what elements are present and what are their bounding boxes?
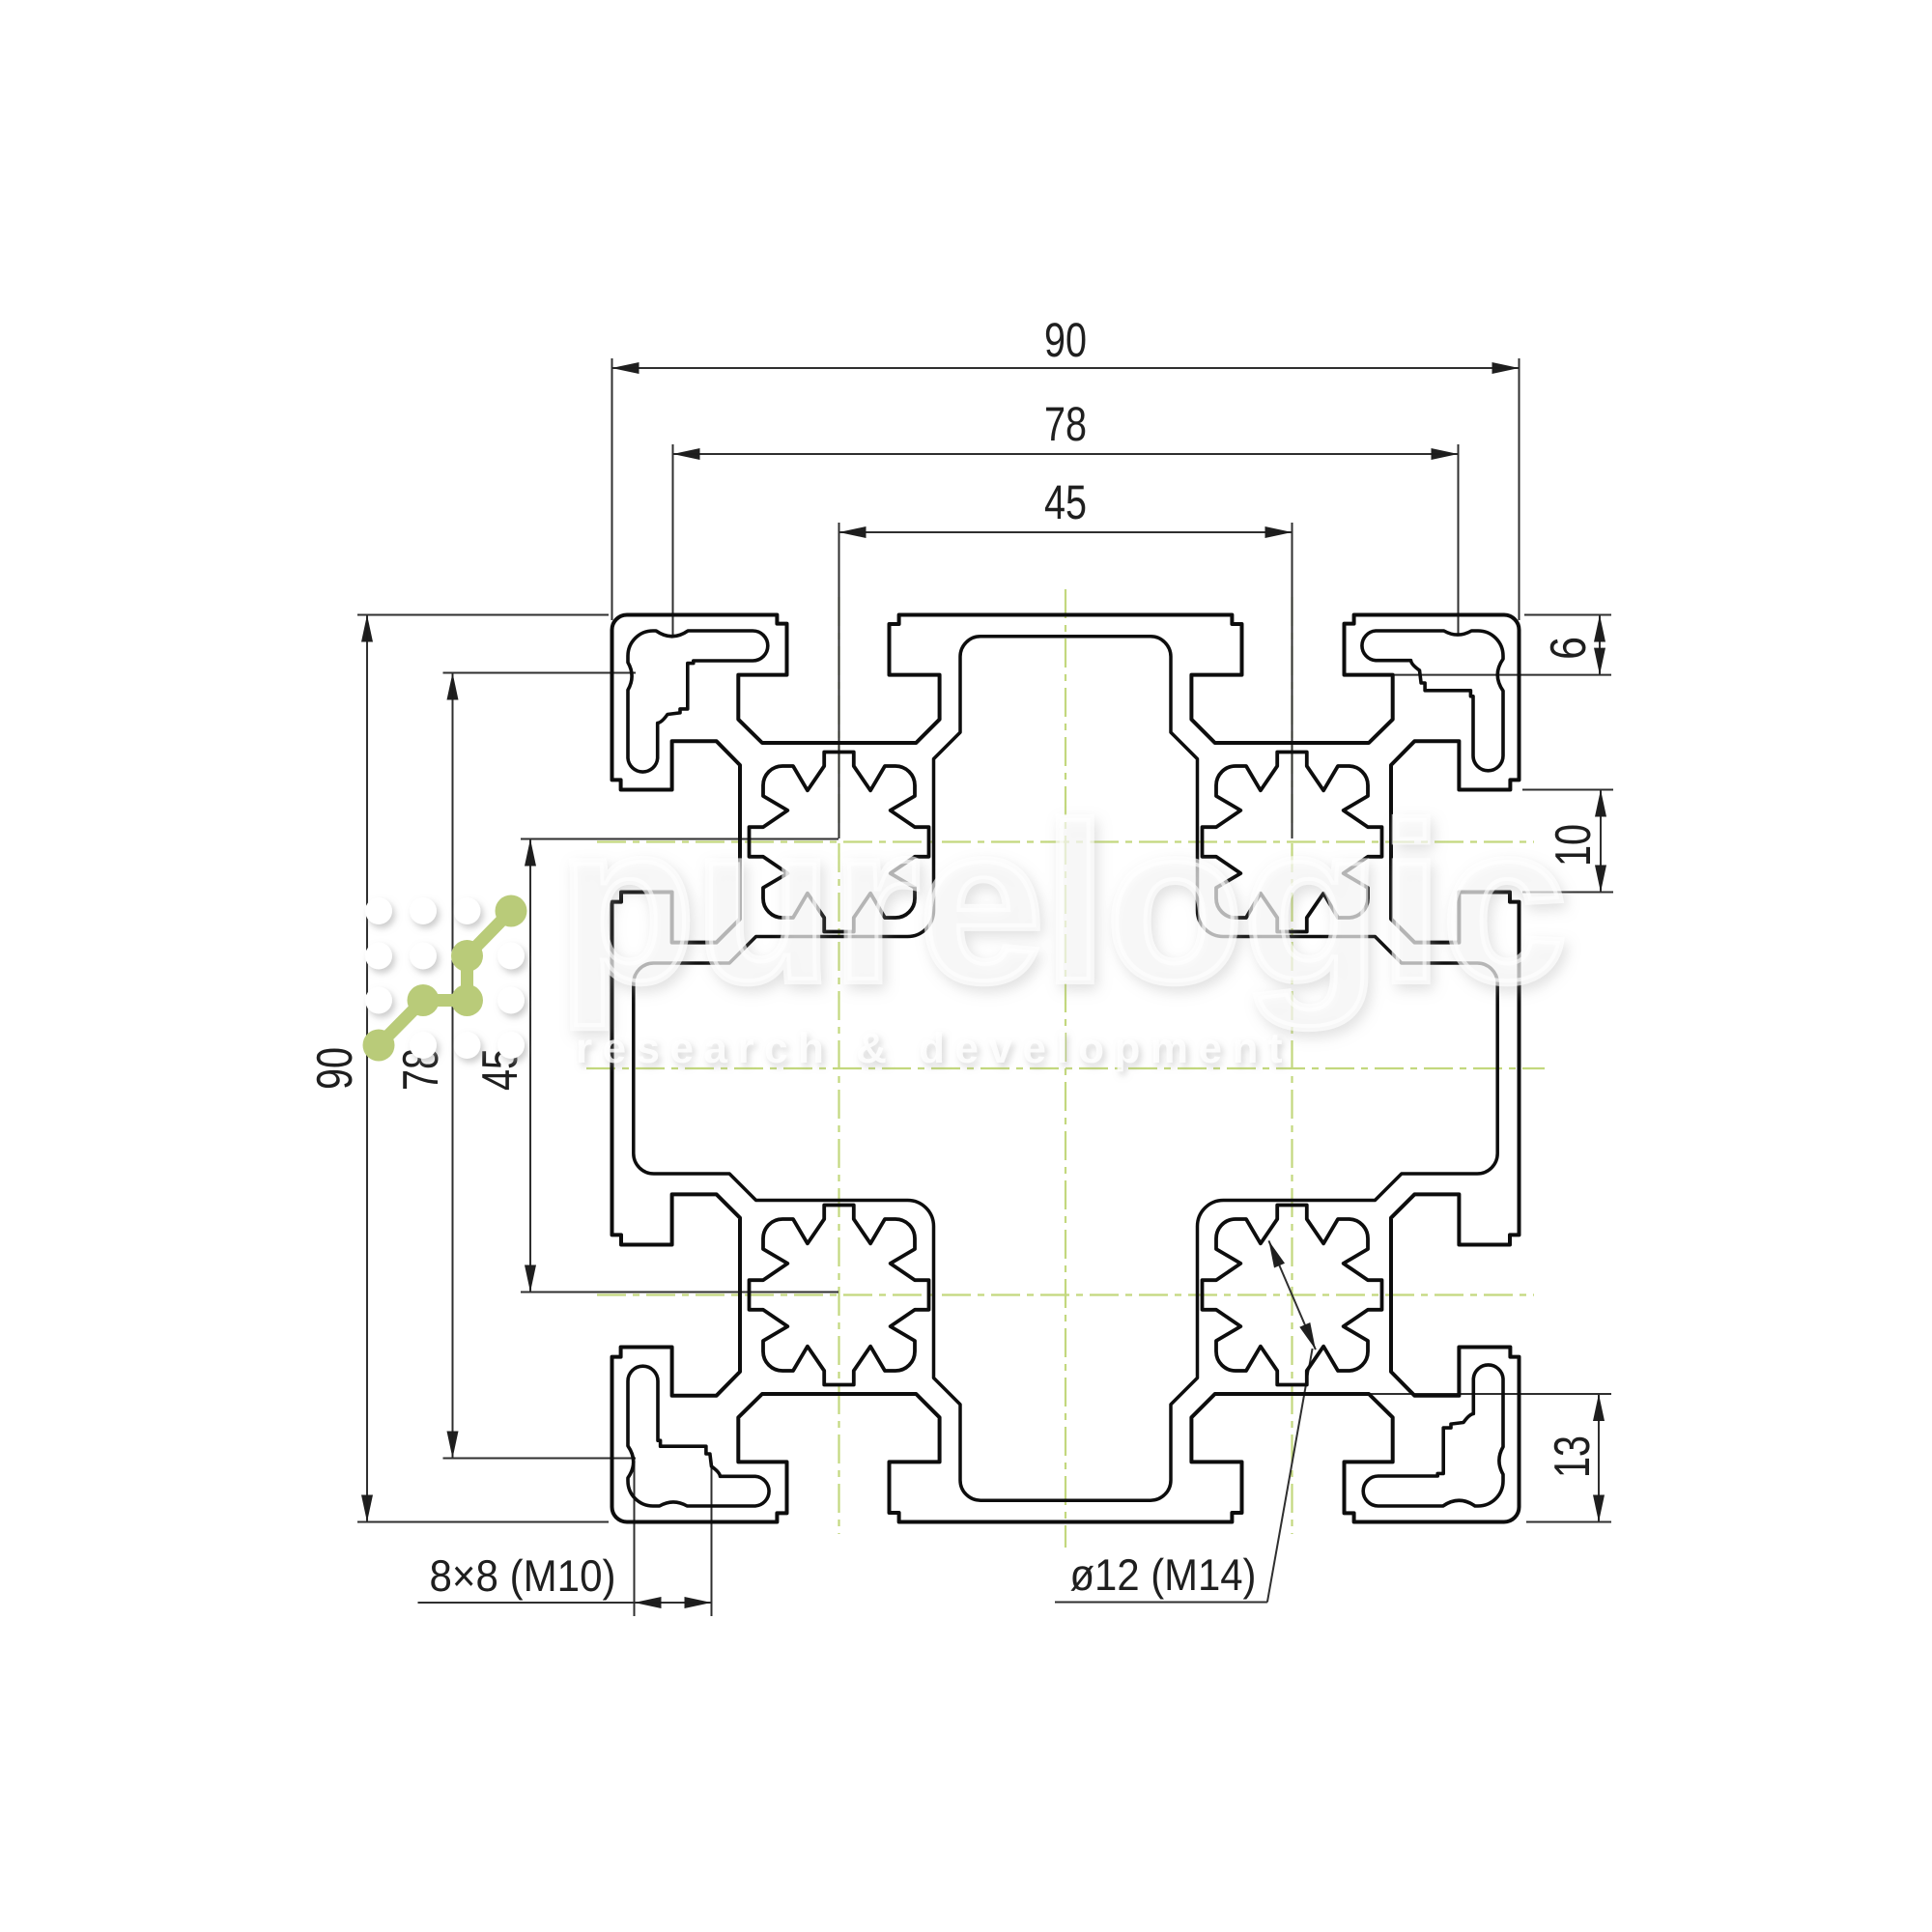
svg-text:purelogic: purelogic: [558, 779, 1567, 1029]
svg-text:8×8 (M10): 8×8 (M10): [430, 1550, 616, 1601]
svg-text:research & development: research & development: [576, 1025, 1293, 1072]
svg-text:45: 45: [1044, 475, 1087, 529]
svg-text:78: 78: [1044, 397, 1087, 451]
svg-text:6: 6: [1541, 637, 1597, 660]
svg-text:90: 90: [1044, 313, 1087, 367]
svg-text:ø12 (M14): ø12 (M14): [1070, 1549, 1257, 1600]
svg-text:13: 13: [1545, 1435, 1601, 1478]
svg-text:90: 90: [307, 1047, 363, 1090]
